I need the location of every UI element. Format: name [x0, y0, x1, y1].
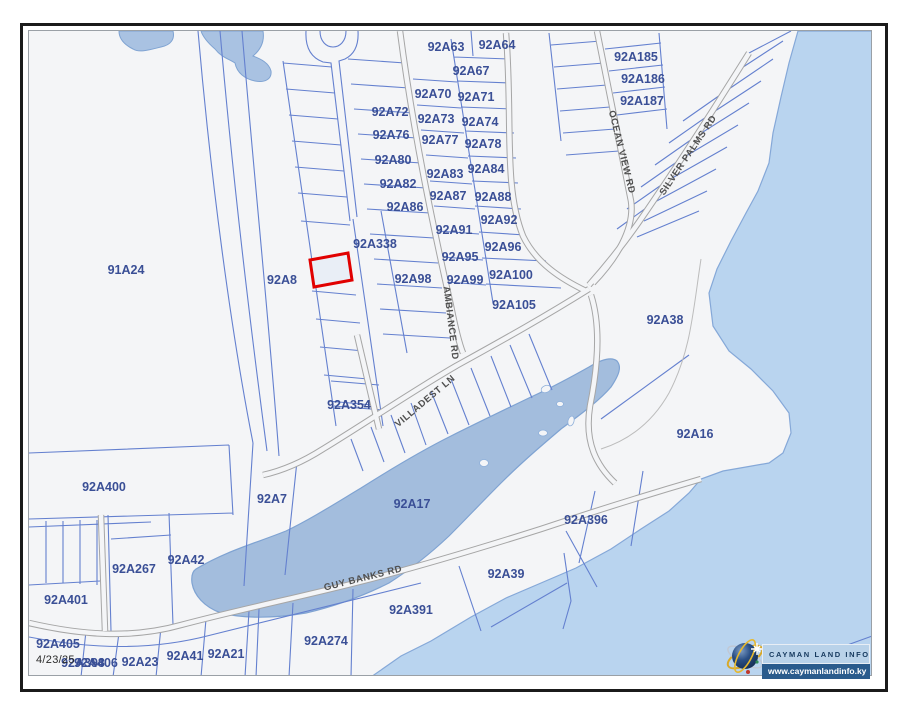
parcel-label-92A187: 92A187	[620, 94, 664, 108]
parcel-label-92A82: 92A82	[380, 177, 417, 191]
parcel-label-92A96: 92A96	[485, 240, 522, 254]
parcel-label-92A267: 92A267	[112, 562, 156, 576]
parcel-label-92A86: 92A86	[387, 200, 424, 214]
parcel-label-92A274: 92A274	[304, 634, 348, 648]
parcel-label-92A88: 92A88	[475, 190, 512, 204]
parcel-label-92A87: 92A87	[430, 189, 467, 203]
parcel-label-92A83: 92A83	[427, 167, 464, 181]
parcel-label-92A8: 92A8	[267, 273, 297, 287]
parcel-label-92A74: 92A74	[462, 115, 499, 129]
parcel-label-92A84: 92A84	[468, 162, 505, 176]
parcel-label-92A354: 92A354	[327, 398, 371, 412]
parcel-label-92A186: 92A186	[621, 72, 665, 86]
parcel-label-92A38: 92A38	[647, 313, 684, 327]
parcel-label-92A91: 92A91	[436, 223, 473, 237]
parcel-label-92A67: 92A67	[453, 64, 490, 78]
parcel-label-92A78: 92A78	[465, 137, 502, 151]
parcel-label-92A21: 92A21	[208, 647, 245, 661]
logo-title: CAYMAN LAND INFO	[762, 644, 870, 664]
cadastral-map-canvas[interactable]: 92A6392A6492A6792A7092A7192A7292A7392A74…	[28, 30, 872, 676]
highlighted-parcel[interactable]	[310, 253, 352, 287]
parcel-label-92A16: 92A16	[677, 427, 714, 441]
parcel-label-92A42: 92A42	[168, 553, 205, 567]
parcel-label-92A80: 92A80	[375, 153, 412, 167]
parcel-label-92A95: 92A95	[442, 250, 479, 264]
parcel-label-92A401: 92A401	[44, 593, 88, 607]
parcel-label-92A105: 92A105	[492, 298, 536, 312]
parcel-label-92A98: 92A98	[395, 272, 432, 286]
parcel-label-92A64: 92A64	[479, 38, 516, 52]
parcel-label-92A406: 92A406	[74, 656, 118, 670]
cayman-land-info-logo[interactable]: CAYMAN LAND INFO www.caymanlandinfo.ky	[724, 632, 874, 680]
parcel-label-92A391: 92A391	[389, 603, 433, 617]
parcel-label-92A63: 92A63	[428, 40, 465, 54]
parcel-label-92A7: 92A7	[257, 492, 287, 506]
logo-url-link[interactable]: www.caymanlandinfo.ky	[762, 664, 870, 679]
parcel-label-92A17: 92A17	[394, 497, 431, 511]
parcel-label-92A72: 92A72	[372, 105, 409, 119]
parcel-label-92A23: 92A23	[122, 655, 159, 669]
parcel-label-92A92: 92A92	[481, 213, 518, 227]
parcel-label-91A24: 91A24	[108, 263, 145, 277]
parcel-label-92A70: 92A70	[415, 87, 452, 101]
parcel-label-92A100: 92A100	[489, 268, 533, 282]
parcel-label-92A41: 92A41	[167, 649, 204, 663]
parcel-label-92A400: 92A400	[82, 480, 126, 494]
parcel-label-92A185: 92A185	[614, 50, 658, 64]
parcel-label-92A39: 92A39	[488, 567, 525, 581]
parcel-label-92A396: 92A396	[564, 513, 608, 527]
parcel-label-92A77: 92A77	[422, 133, 459, 147]
parcel-label-92A73: 92A73	[418, 112, 455, 126]
parcel-label-92A338: 92A338	[353, 237, 397, 251]
cadastral-map[interactable]: 92A6392A6492A6792A7092A7192A7292A7392A74…	[29, 31, 871, 675]
date-stamp: 4/23/25	[36, 654, 75, 666]
parcel-label-92A76: 92A76	[373, 128, 410, 142]
parcel-label-92A71: 92A71	[458, 90, 495, 104]
parcel-label-92A405: 92A405	[36, 637, 80, 651]
map-viewer: 92A6392A6492A6792A7092A7192A7292A7392A74…	[0, 0, 905, 710]
